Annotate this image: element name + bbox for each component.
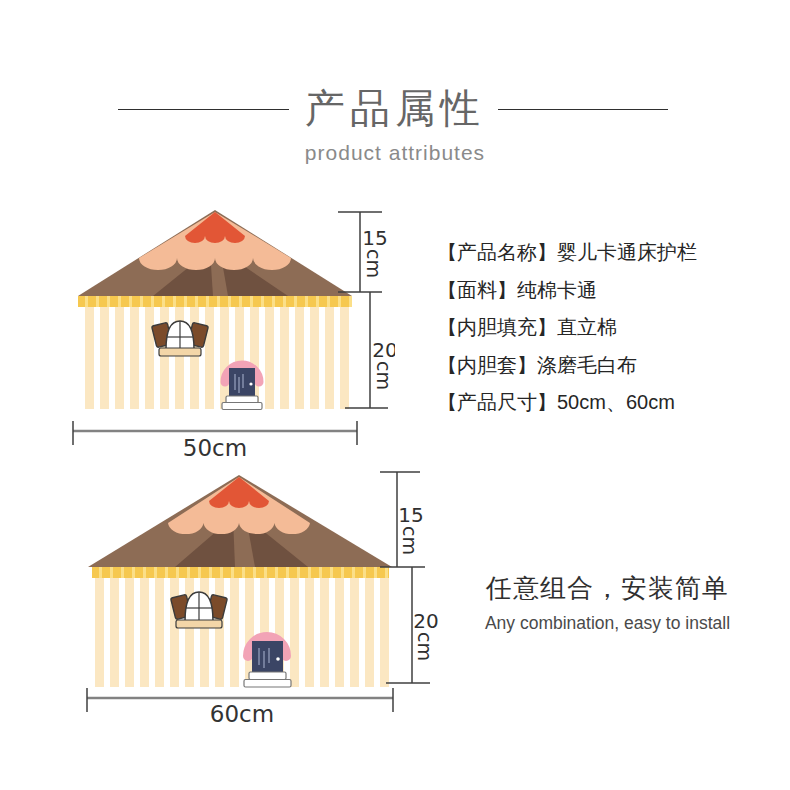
door-panel [252, 641, 283, 673]
eave-band [78, 296, 352, 307]
width-label: 50cm [183, 435, 247, 461]
width-label: 60cm [210, 701, 274, 727]
wall-height-unit: cm [414, 632, 436, 661]
door-knob [276, 657, 280, 661]
striped-wall [93, 578, 389, 687]
slogan-block: 任意组合，安装简单 Any combination, easy to insta… [450, 571, 765, 634]
window [171, 592, 228, 628]
house-diagram-60cm: 15 cm 20 cm 60cm [80, 465, 440, 727]
attribute-item-size: 【产品尺寸】50cm、60cm [437, 384, 777, 422]
page-title: 产品属性 [0, 86, 790, 130]
house-diagram-50cm: 15 cm 20 cm 50cm [55, 200, 395, 462]
roof-height-unit: cm [363, 249, 385, 278]
slogan-cn: 任意组合，安装简单 [450, 571, 765, 606]
page-subtitle: product attributes [0, 141, 790, 165]
roof [88, 475, 392, 567]
wall-height-unit: cm [373, 361, 395, 390]
eave-band [92, 567, 389, 578]
attribute-item-fabric: 【面料】纯棉卡通 [437, 272, 777, 310]
door-step-lower [222, 403, 262, 410]
roof-height-value: 15 [362, 226, 387, 250]
attribute-item-cover: 【内胆套】涤磨毛白布 [437, 347, 777, 385]
door-step-upper [249, 672, 286, 680]
roof-height-unit: cm [399, 526, 421, 555]
slogan-en: Any combination, easy to install [450, 613, 765, 634]
roof-height-value: 15 [398, 503, 423, 527]
attribute-item-name: 【产品名称】婴儿卡通床护栏 [437, 234, 777, 272]
window-sill [159, 348, 201, 356]
wall-height-value: 20 [372, 338, 395, 362]
window [152, 321, 209, 356]
striped-wall [80, 307, 351, 409]
attribute-list: 【产品名称】婴儿卡通床护栏 【面料】纯棉卡通 【内胆填充】直立棉 【内胆套】涤磨… [437, 234, 777, 422]
attribute-item-filling: 【内胆填充】直立棉 [437, 309, 777, 347]
door-step-lower [244, 680, 291, 688]
window-sill [176, 620, 222, 628]
door-knob [249, 382, 252, 385]
roof [78, 210, 352, 296]
wall-height-value: 20 [413, 609, 438, 633]
